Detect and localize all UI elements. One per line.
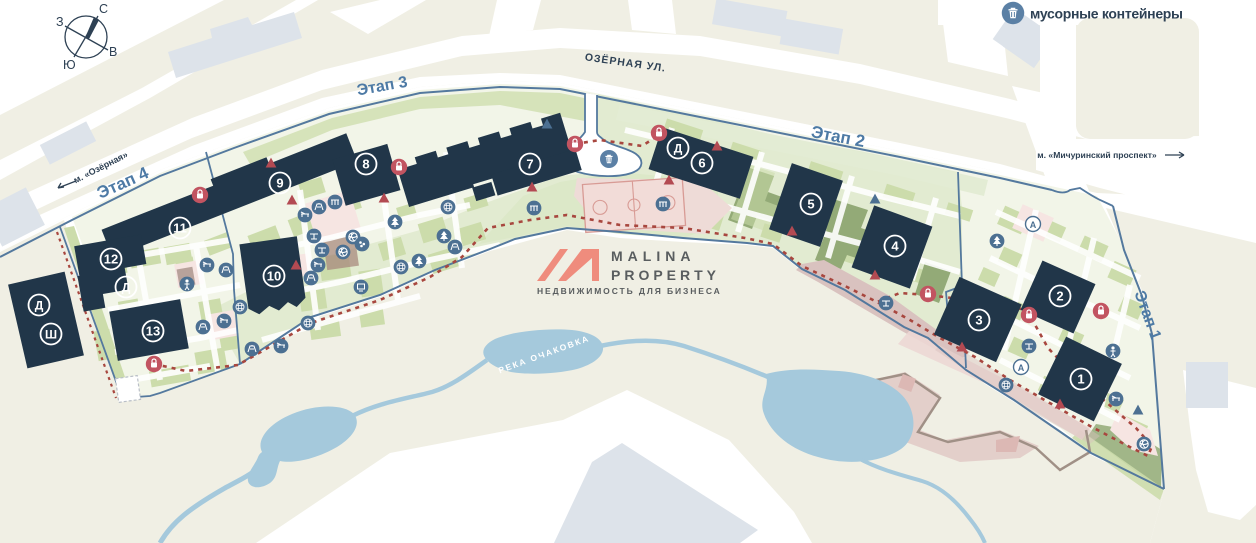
svg-text:PROPERTY: PROPERTY	[611, 267, 720, 283]
svg-text:3: 3	[975, 313, 982, 328]
svg-text:Д: Д	[35, 299, 44, 313]
svg-text:MALINA: MALINA	[611, 248, 695, 264]
svg-text:З: З	[56, 15, 64, 29]
svg-text:11: 11	[173, 221, 187, 236]
svg-text:13: 13	[146, 324, 160, 339]
svg-text:2: 2	[1056, 289, 1063, 304]
svg-text:1: 1	[1077, 372, 1084, 387]
svg-text:7: 7	[526, 157, 533, 172]
svg-text:4: 4	[891, 239, 899, 254]
svg-text:мусорные контейнеры: мусорные контейнеры	[1030, 6, 1183, 22]
svg-text:Д: Д	[122, 281, 131, 295]
svg-text:С: С	[99, 2, 108, 16]
svg-text:10: 10	[267, 269, 281, 284]
svg-text:НЕДВИЖИМОСТЬ ДЛЯ БИЗНЕСА: НЕДВИЖИМОСТЬ ДЛЯ БИЗНЕСА	[537, 286, 722, 296]
svg-text:9: 9	[276, 176, 283, 191]
svg-text:м. «Мичуринский проспект»: м. «Мичуринский проспект»	[1037, 150, 1157, 160]
svg-text:12: 12	[104, 252, 118, 267]
svg-text:8: 8	[362, 157, 369, 172]
svg-text:Д: Д	[674, 142, 683, 156]
svg-text:Ш: Ш	[45, 328, 57, 342]
svg-text:6: 6	[698, 156, 705, 171]
svg-text:В: В	[109, 45, 117, 59]
svg-text:5: 5	[807, 197, 814, 212]
svg-text:Ю: Ю	[63, 58, 76, 72]
